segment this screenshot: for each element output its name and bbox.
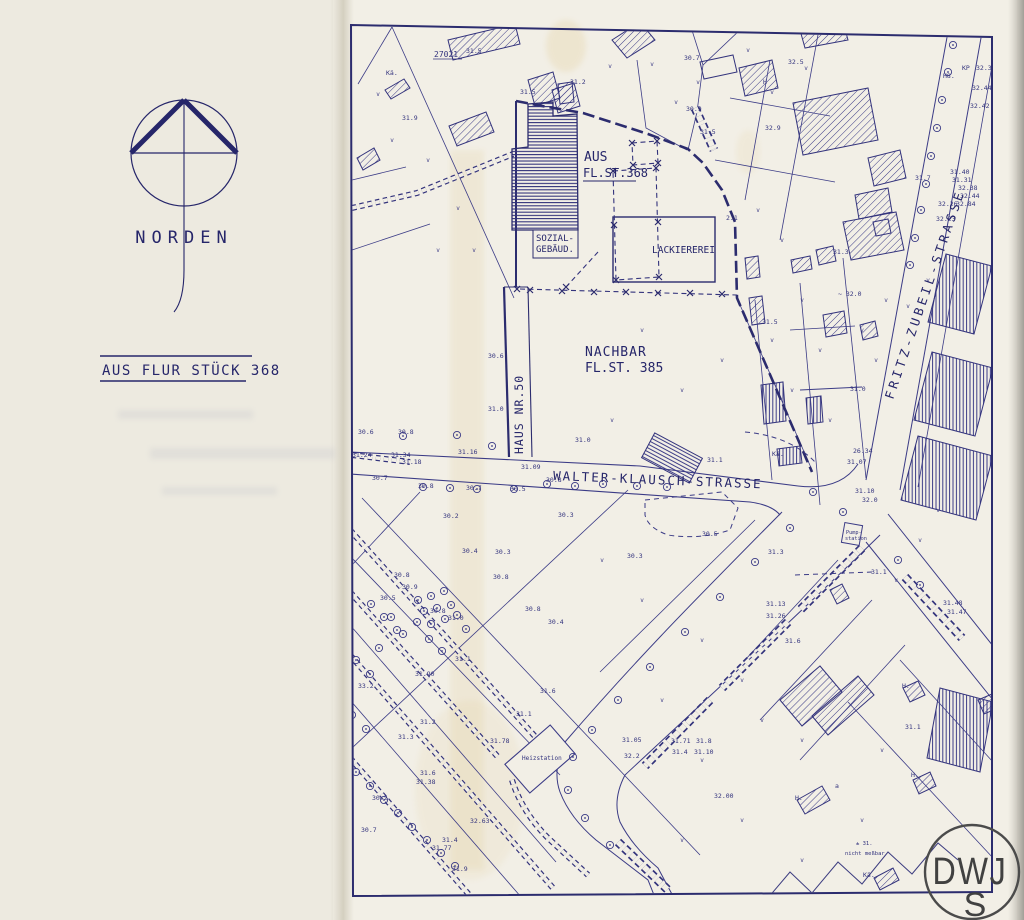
elevation-number: 30.9 — [686, 105, 702, 113]
elevation-number: a — [835, 782, 839, 790]
flur-note-label: AUS FLUR STÜCK 368 — [102, 361, 281, 379]
elevation-number: 30.6 — [358, 428, 374, 436]
elevation-number: 30.6 — [488, 352, 504, 360]
elevation-number: 31.1 — [455, 655, 471, 663]
site-plan-svg: NORDEN AUS FLUR STÜCK 368 — [0, 0, 1024, 920]
vegetation-mark: v — [436, 247, 440, 254]
elevation-number: 32.00 — [714, 792, 734, 800]
elevation-number: 31.0 — [575, 436, 591, 444]
elevation-number: 31.40 — [950, 168, 970, 176]
elevation-number: 31.3 — [398, 733, 414, 741]
elevation-number: 31.1 — [707, 456, 723, 464]
vegetation-mark: v — [936, 507, 940, 514]
elevation-number: Kä. — [386, 69, 398, 77]
vegetation-mark: v — [640, 327, 644, 334]
stamp-text-line2: S — [964, 886, 987, 920]
vegetation-mark: v — [740, 817, 744, 824]
vegetation-mark: v — [790, 387, 794, 394]
elevation-number: 31.24 — [352, 451, 372, 459]
sozial-label-line2: GEBÄUD. — [536, 244, 574, 255]
elevation-number: 31.10 — [694, 748, 714, 756]
vegetation-mark: v — [680, 387, 684, 394]
elevation-number: 31.3 — [833, 248, 849, 256]
vegetation-mark: v — [600, 557, 604, 564]
elevation-number: 31.16 — [458, 448, 478, 456]
elevation-number: KP — [962, 64, 970, 72]
vegetation-mark: v — [680, 837, 684, 844]
elevation-number: 31.1 — [871, 568, 887, 576]
elevation-number: 32.44 — [972, 84, 992, 92]
elevation-number: H. — [911, 771, 919, 779]
elevation-number: 31.09 — [521, 463, 541, 471]
vegetation-mark: v — [894, 577, 898, 584]
vegetation-mark: v — [610, 417, 614, 424]
elevation-number: 32.63 — [470, 817, 490, 825]
elevation-number: 31.5 — [762, 318, 778, 326]
nicht-messbar-label-line2: nicht meßbar — [845, 851, 885, 857]
elevation-number: 30.8 — [398, 428, 414, 436]
vegetation-mark: v — [828, 417, 832, 424]
elevation-number: 26.34 — [853, 447, 873, 455]
elevation-number: 31.48 — [943, 599, 963, 607]
aus-flst-label-line2: FL.ST.368 — [583, 166, 648, 180]
parcel-number-label: 27021 — [434, 50, 458, 59]
elevation-number: 31.7 — [915, 174, 931, 182]
vegetation-mark: v — [800, 857, 804, 864]
vegetation-mark: v — [770, 89, 774, 96]
vegetation-mark: v — [740, 677, 744, 684]
vegetation-mark: v — [456, 205, 460, 212]
elevation-number: 31.90 — [415, 670, 435, 678]
elevation-number: 32.9 — [765, 124, 781, 132]
vegetation-mark: v — [780, 237, 784, 244]
elevation-number: 30.8 — [493, 573, 509, 581]
elevation-number: 30.5 — [380, 594, 396, 602]
elevation-number: 31.05 — [622, 736, 642, 744]
elevation-number: H. — [902, 682, 910, 690]
elevation-number: 30.3 — [627, 552, 643, 560]
aus-flst-label-line1: AUS — [584, 150, 607, 165]
elevation-number: 31.6 — [785, 637, 801, 645]
pump-station-label-line2: station — [845, 536, 867, 542]
elevation-number: 31.2 — [420, 718, 436, 726]
heizstation-label: Heizstation — [522, 755, 562, 762]
elevation-number: 31.0 — [448, 614, 464, 622]
vegetation-mark: v — [800, 297, 804, 304]
elevation-number: 31.5 — [700, 128, 716, 136]
elevation-number: 31.31 — [952, 176, 972, 184]
elevation-number: 31.9 — [402, 114, 418, 122]
haus-nr50-label: HAUS NR.50 — [512, 375, 526, 454]
vegetation-mark: v — [804, 65, 808, 72]
vegetation-mark: v — [660, 697, 664, 704]
elevation-number: 30.4 — [548, 618, 564, 626]
lackiererei-label: LACKIEREREI — [652, 245, 715, 256]
vegetation-mark: v — [696, 79, 700, 86]
elevation-number: 30.2 — [372, 794, 388, 802]
vegetation-mark: v — [818, 347, 822, 354]
elevation-number: 30.2 — [443, 512, 459, 520]
vegetation-mark: v — [860, 817, 864, 824]
scanned-site-plan: { "colors": { "ink": "#3b3b86", "ink_bol… — [0, 0, 1024, 920]
vegetation-mark: v — [640, 597, 644, 604]
elevation-number: 31.26 — [766, 612, 786, 620]
elevation-number: 31.4 — [442, 836, 458, 844]
elevation-number: 31.47 — [947, 608, 967, 616]
vegetation-mark: v — [746, 47, 750, 54]
elevation-number: 30.7 — [361, 826, 377, 834]
elevation-number: 31.1 — [905, 723, 921, 731]
elevation-number: 31.1 — [516, 710, 532, 718]
elevation-number: 33.2 — [358, 682, 374, 690]
vegetation-mark: v — [650, 61, 654, 68]
elevation-number: 31.07 — [847, 458, 867, 466]
elevation-number: 31.9 — [452, 865, 468, 873]
nicht-messbar-label-line1: ± 31. — [856, 841, 873, 847]
elevation-number: 31.6 — [540, 687, 556, 695]
elevation-number: 32.0 — [862, 496, 878, 504]
elevation-number: 31.38 — [416, 778, 436, 786]
vegetation-mark: v — [700, 637, 704, 644]
nachbar-label-line1: NACHBAR — [585, 345, 647, 360]
elevation-number: H. — [795, 794, 803, 802]
elevation-number: 30.4 — [462, 547, 478, 555]
vegetation-mark: v — [906, 303, 910, 310]
vegetation-mark: v — [426, 157, 430, 164]
elevation-number: 31.5 — [520, 88, 536, 96]
vegetation-mark: v — [880, 747, 884, 754]
vegetation-mark: v — [674, 99, 678, 106]
elevation-number: 31.2 — [570, 78, 586, 86]
vegetation-mark: v — [770, 337, 774, 344]
vegetation-mark: v — [472, 247, 476, 254]
elevation-number: 31.10 — [855, 487, 875, 495]
elevation-number: H — [763, 78, 767, 86]
elevation-number: 31.78 — [490, 737, 510, 745]
elevation-number: 31.77 — [432, 844, 452, 852]
vegetation-mark: v — [760, 717, 764, 724]
vegetation-mark: v — [376, 91, 380, 98]
elevation-number: 30.9 — [402, 583, 418, 591]
elevation-number: 31.13 — [766, 600, 786, 608]
elevation-number: 30.8 — [430, 607, 446, 615]
elevation-number: 31.3 — [768, 548, 784, 556]
vegetation-mark: v — [884, 297, 888, 304]
vegetation-mark: v — [756, 207, 760, 214]
elevation-number: Kä. — [772, 450, 784, 458]
vegetation-mark: v — [720, 357, 724, 364]
elevation-number: 31.6 — [420, 769, 436, 777]
elevation-number: 30.5 — [702, 530, 718, 538]
elevation-number: 30.7 — [684, 54, 700, 62]
elevation-number: 32.5 — [788, 58, 804, 66]
elevation-number: ~ 32.0 — [838, 290, 862, 298]
nachbar-label-line2: FL.ST. 385 — [585, 361, 663, 376]
elevation-number: 31.4 — [672, 748, 688, 756]
elevation-number: 31.0 — [850, 385, 866, 393]
elevation-number: 30.3 — [558, 511, 574, 519]
elevation-number: 2.1 — [726, 214, 738, 222]
vegetation-mark: v — [860, 327, 864, 334]
vegetation-mark: v — [918, 537, 922, 544]
elevation-number: 30.3 — [495, 548, 511, 556]
elevation-number: 30.8 — [418, 482, 434, 490]
elevation-number: 31.71 — [671, 737, 691, 745]
vegetation-mark: v — [608, 63, 612, 70]
elevation-number: 31.18 — [402, 458, 422, 466]
elevation-number: 31.0 — [488, 405, 504, 413]
vegetation-mark: v — [874, 357, 878, 364]
elevation-number: 30.8 — [525, 605, 541, 613]
sozial-label-line1: SOZIAL- — [536, 234, 574, 244]
elevation-number: 30.5 — [510, 485, 526, 493]
norden-label: NORDEN — [135, 228, 232, 248]
vegetation-mark: v — [800, 737, 804, 744]
elevation-number: 30.7 — [466, 484, 482, 492]
elevation-number: 30.7 — [372, 474, 388, 482]
elevation-number: 32.42 — [970, 102, 990, 110]
elevation-number: 31.8 — [696, 737, 712, 745]
vegetation-mark: v — [390, 137, 394, 144]
elevation-number: 32.2 — [624, 752, 640, 760]
elevation-number: Kä. — [863, 871, 875, 879]
elevation-number: H8. — [943, 72, 955, 80]
elevation-number: 30.8 — [394, 571, 410, 579]
elevation-number: 31.5 — [466, 47, 482, 55]
vegetation-mark: v — [700, 757, 704, 764]
